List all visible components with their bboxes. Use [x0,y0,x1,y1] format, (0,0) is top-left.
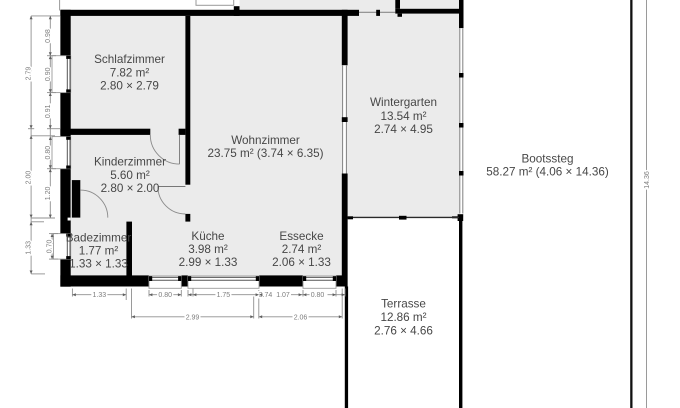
svg-text:2.99: 2.99 [186,314,200,321]
svg-text:0.80: 0.80 [311,292,325,299]
svg-text:12.86 m²: 12.86 m² [380,311,426,324]
svg-text:3.74: 3.74 [259,292,273,299]
svg-text:2.06 × 1.33: 2.06 × 1.33 [272,256,331,269]
svg-text:13.54 m²: 13.54 m² [380,110,426,123]
svg-text:1.07: 1.07 [276,292,290,299]
svg-text:1.33 × 1.33: 1.33 × 1.33 [69,258,128,271]
svg-text:Küche: Küche [191,230,224,243]
svg-text:3.98 m²: 3.98 m² [188,243,228,256]
svg-text:0.80: 0.80 [158,292,172,299]
svg-text:7.82 m²: 7.82 m² [110,66,150,79]
svg-text:1.77 m²: 1.77 m² [79,245,119,258]
svg-text:2.06: 2.06 [294,314,308,321]
svg-text:Kinderzimmer: Kinderzimmer [94,156,166,169]
svg-text:0.91: 0.91 [45,104,52,118]
svg-text:0.98: 0.98 [45,29,52,43]
svg-text:23.75 m² (3.74 × 6.35): 23.75 m² (3.74 × 6.35) [208,147,324,160]
svg-text:Wohnzimmer: Wohnzimmer [231,134,300,147]
svg-text:2.99 × 1.33: 2.99 × 1.33 [179,256,238,269]
svg-text:1.33: 1.33 [92,292,106,299]
svg-text:2.76 × 4.66: 2.76 × 4.66 [374,325,433,338]
svg-text:2.80 × 2.79: 2.80 × 2.79 [100,80,159,93]
svg-text:Badezimmer: Badezimmer [66,232,132,245]
svg-text:0.90: 0.90 [45,67,52,81]
svg-text:58.27 m² (4.06 × 14.36): 58.27 m² (4.06 × 14.36) [486,166,609,179]
svg-text:2.80 × 2.00: 2.80 × 2.00 [101,182,160,195]
svg-text:1.33: 1.33 [26,241,33,255]
svg-text:2.79: 2.79 [26,67,33,81]
svg-text:Bootssteg: Bootssteg [522,153,574,166]
svg-text:5.60 m²: 5.60 m² [110,169,150,182]
svg-text:1.75: 1.75 [217,292,231,299]
svg-text:0.70: 0.70 [47,239,54,253]
svg-text:Schlafzimmer: Schlafzimmer [94,53,165,66]
svg-text:Wintergarten: Wintergarten [370,96,437,109]
svg-text:Terrasse: Terrasse [381,298,426,311]
svg-text:2.74 × 4.95: 2.74 × 4.95 [374,123,433,136]
svg-text:Essecke: Essecke [279,230,323,243]
svg-text:0.80: 0.80 [45,146,52,160]
svg-text:1.20: 1.20 [45,186,52,200]
svg-text:14.36: 14.36 [644,171,651,189]
svg-text:2.74 m²: 2.74 m² [282,243,322,256]
svg-text:2.00: 2.00 [26,171,33,185]
